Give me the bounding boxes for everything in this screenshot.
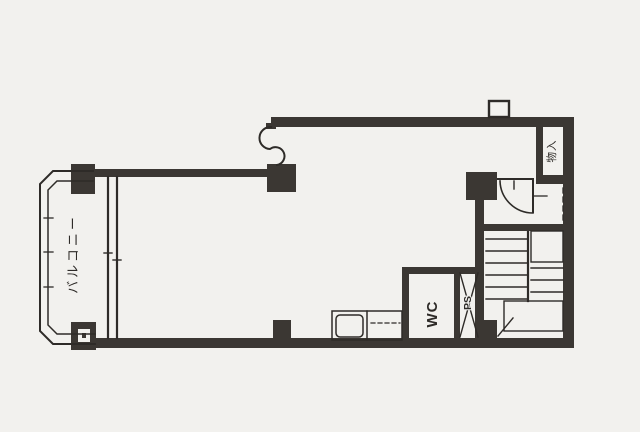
wc-label: WC bbox=[424, 301, 441, 328]
scanned-floor-plan-page: バルコニー 物入 WC PS bbox=[0, 0, 640, 432]
column-top-middle bbox=[267, 164, 296, 192]
closet-left-wall bbox=[536, 126, 543, 181]
balcony-window-wall bbox=[104, 177, 121, 338]
stair-top-wall bbox=[484, 224, 573, 231]
balcony: バルコニー bbox=[40, 171, 95, 344]
s-door-swing bbox=[259, 127, 284, 165]
top-wall-vent bbox=[489, 101, 509, 117]
stair-lower-landing bbox=[504, 301, 563, 331]
balcony-label: バルコニー bbox=[65, 214, 80, 294]
wc-room: WC bbox=[424, 301, 441, 328]
stair-upper-landing bbox=[531, 231, 563, 262]
staircase bbox=[486, 231, 563, 336]
kitchenette bbox=[332, 311, 402, 340]
column-stair-bottom bbox=[477, 320, 497, 346]
column-bottom-middle bbox=[273, 320, 291, 343]
wc-left-wall bbox=[402, 267, 409, 348]
ps-label: PS bbox=[462, 296, 474, 310]
column-entry bbox=[466, 172, 497, 200]
wc-ps-divider-wall bbox=[454, 272, 460, 338]
top-wall bbox=[271, 117, 573, 127]
column-top-left bbox=[71, 164, 95, 194]
right-wall bbox=[563, 117, 574, 348]
stair-bottom-door-line bbox=[498, 318, 513, 336]
entry-door bbox=[498, 179, 563, 224]
door-swing-arc bbox=[500, 181, 533, 213]
upper-left-wall bbox=[93, 169, 271, 177]
stair-treads-left bbox=[486, 239, 528, 299]
storage-label: 物入 bbox=[545, 140, 558, 163]
entry-s-door bbox=[259, 123, 284, 165]
wc-top-wall bbox=[402, 267, 484, 274]
floor-plan-drawing: バルコニー 物入 WC PS bbox=[0, 0, 640, 432]
exterior-walls bbox=[93, 117, 574, 348]
kitchenette-sink bbox=[336, 315, 363, 337]
storage-closet: 物入 bbox=[545, 140, 558, 163]
closet-bottom-wall bbox=[536, 175, 563, 184]
stair-treads-right bbox=[531, 268, 563, 292]
